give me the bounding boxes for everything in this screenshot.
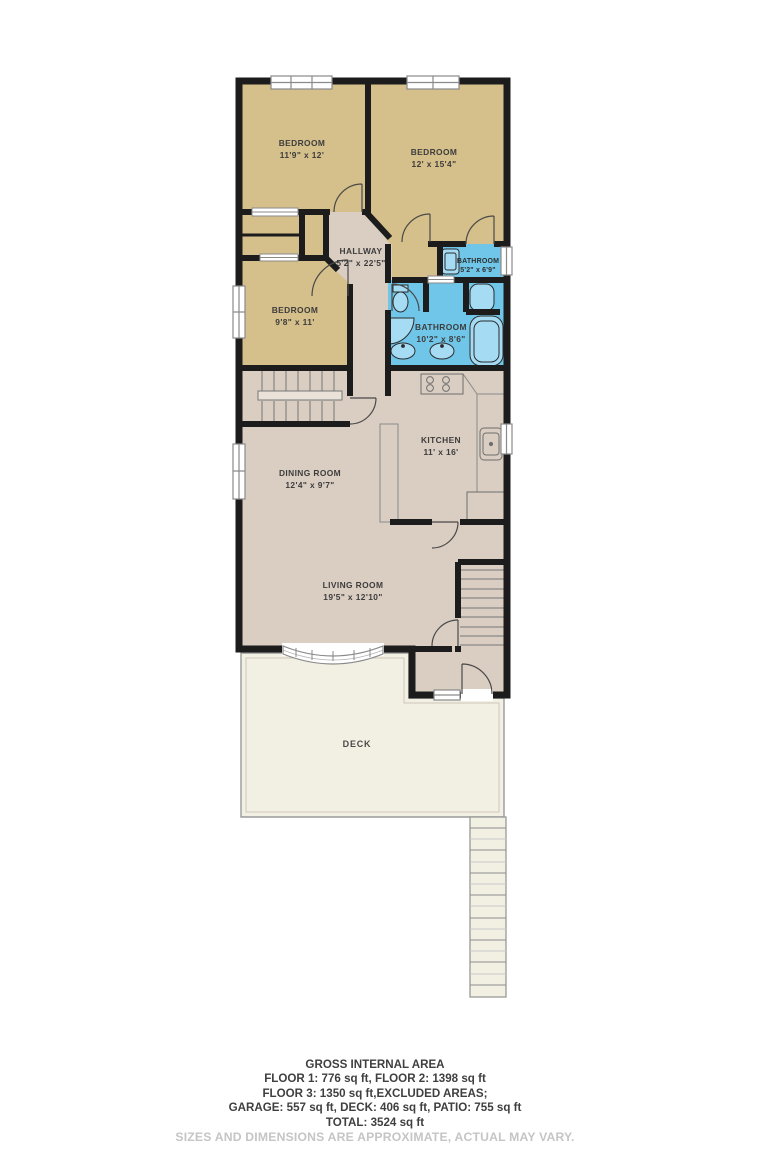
small-tub-fixture (470, 284, 494, 311)
floor-plan-page: BEDROOM 11'9" x 12' BEDROOM 12' x 15'4" … (0, 0, 768, 1152)
deck-area (241, 653, 506, 997)
window-kitchen (501, 424, 512, 454)
label-bedroom-1-name: BEDROOM (279, 138, 326, 148)
label-deck: DECK (343, 739, 372, 749)
label-dining-name: DINING ROOM (279, 468, 341, 478)
label-bedroom-2-dims: 12' x 15'4" (412, 159, 457, 169)
label-living-name: LIVING ROOM (323, 580, 384, 590)
window-bedroom-2 (407, 76, 459, 89)
label-bathroom-main-dims: 10'2" x 8'6" (416, 334, 465, 344)
closet-door-bedroom-1 (252, 208, 298, 216)
label-kitchen-name: KITCHEN (421, 435, 461, 445)
fridge-fixture (467, 492, 505, 522)
kitchen-peninsula (380, 424, 398, 522)
summary-line-3: GARAGE: 557 sq ft, DECK: 406 sq ft, PATI… (0, 1101, 750, 1115)
label-bathroom-small-dims: 5'2" x 6'9" (460, 267, 496, 274)
label-kitchen-dims: 11' x 16' (423, 447, 458, 457)
label-bedroom-1-dims: 11'9" x 12' (280, 150, 325, 160)
summary-disclaimer: SIZES AND DIMENSIONS ARE APPROXIMATE, AC… (0, 1130, 750, 1144)
summary-line-1: FLOOR 1: 776 sq ft, FLOOR 2: 1398 sq ft (0, 1072, 750, 1086)
label-bathroom-main-name: BATHROOM (415, 322, 467, 332)
bathtub-fixture (470, 316, 503, 366)
label-dining-dims: 12'4" x 9'7" (285, 480, 334, 490)
summary-title: GROSS INTERNAL AREA (0, 1058, 750, 1072)
window-entry (434, 690, 460, 700)
label-bedroom-3-name: BEDROOM (272, 305, 319, 315)
label-bedroom-2-name: BEDROOM (411, 147, 458, 157)
summary-total: TOTAL: 3524 sq ft (0, 1116, 750, 1130)
kitchen-sink-fixture (480, 428, 502, 460)
window-bathroom-small (501, 247, 512, 275)
label-bathroom-small-name: BATHROOM (457, 258, 499, 265)
window-dining (233, 444, 245, 499)
floor-plan: BEDROOM 11'9" x 12' BEDROOM 12' x 15'4" … (0, 0, 768, 1152)
label-hallway-name: HALLWAY (340, 246, 383, 256)
area-summary: GROSS INTERNAL AREA FLOOR 1: 776 sq ft, … (0, 1058, 750, 1144)
staircase-deck (470, 817, 506, 997)
closet-bedroom-2 (392, 244, 440, 280)
summary-line-2: FLOOR 3: 1350 sq ft,EXCLUDED AREAS; (0, 1087, 750, 1101)
stove-fixture (421, 374, 463, 394)
closet-door-hall (428, 276, 454, 283)
closet-door-bedroom-3 (260, 254, 298, 261)
label-living-dims: 19'5" x 12'10" (323, 592, 382, 602)
window-bedroom-3 (233, 286, 245, 338)
window-bedroom-1 (271, 76, 332, 89)
label-bedroom-3-dims: 9'8" x 11' (275, 317, 314, 327)
toilet-fixture (393, 285, 408, 312)
entry-door-gap (461, 689, 493, 701)
label-hallway-dims: 5'2" x 22'5" (336, 258, 385, 268)
